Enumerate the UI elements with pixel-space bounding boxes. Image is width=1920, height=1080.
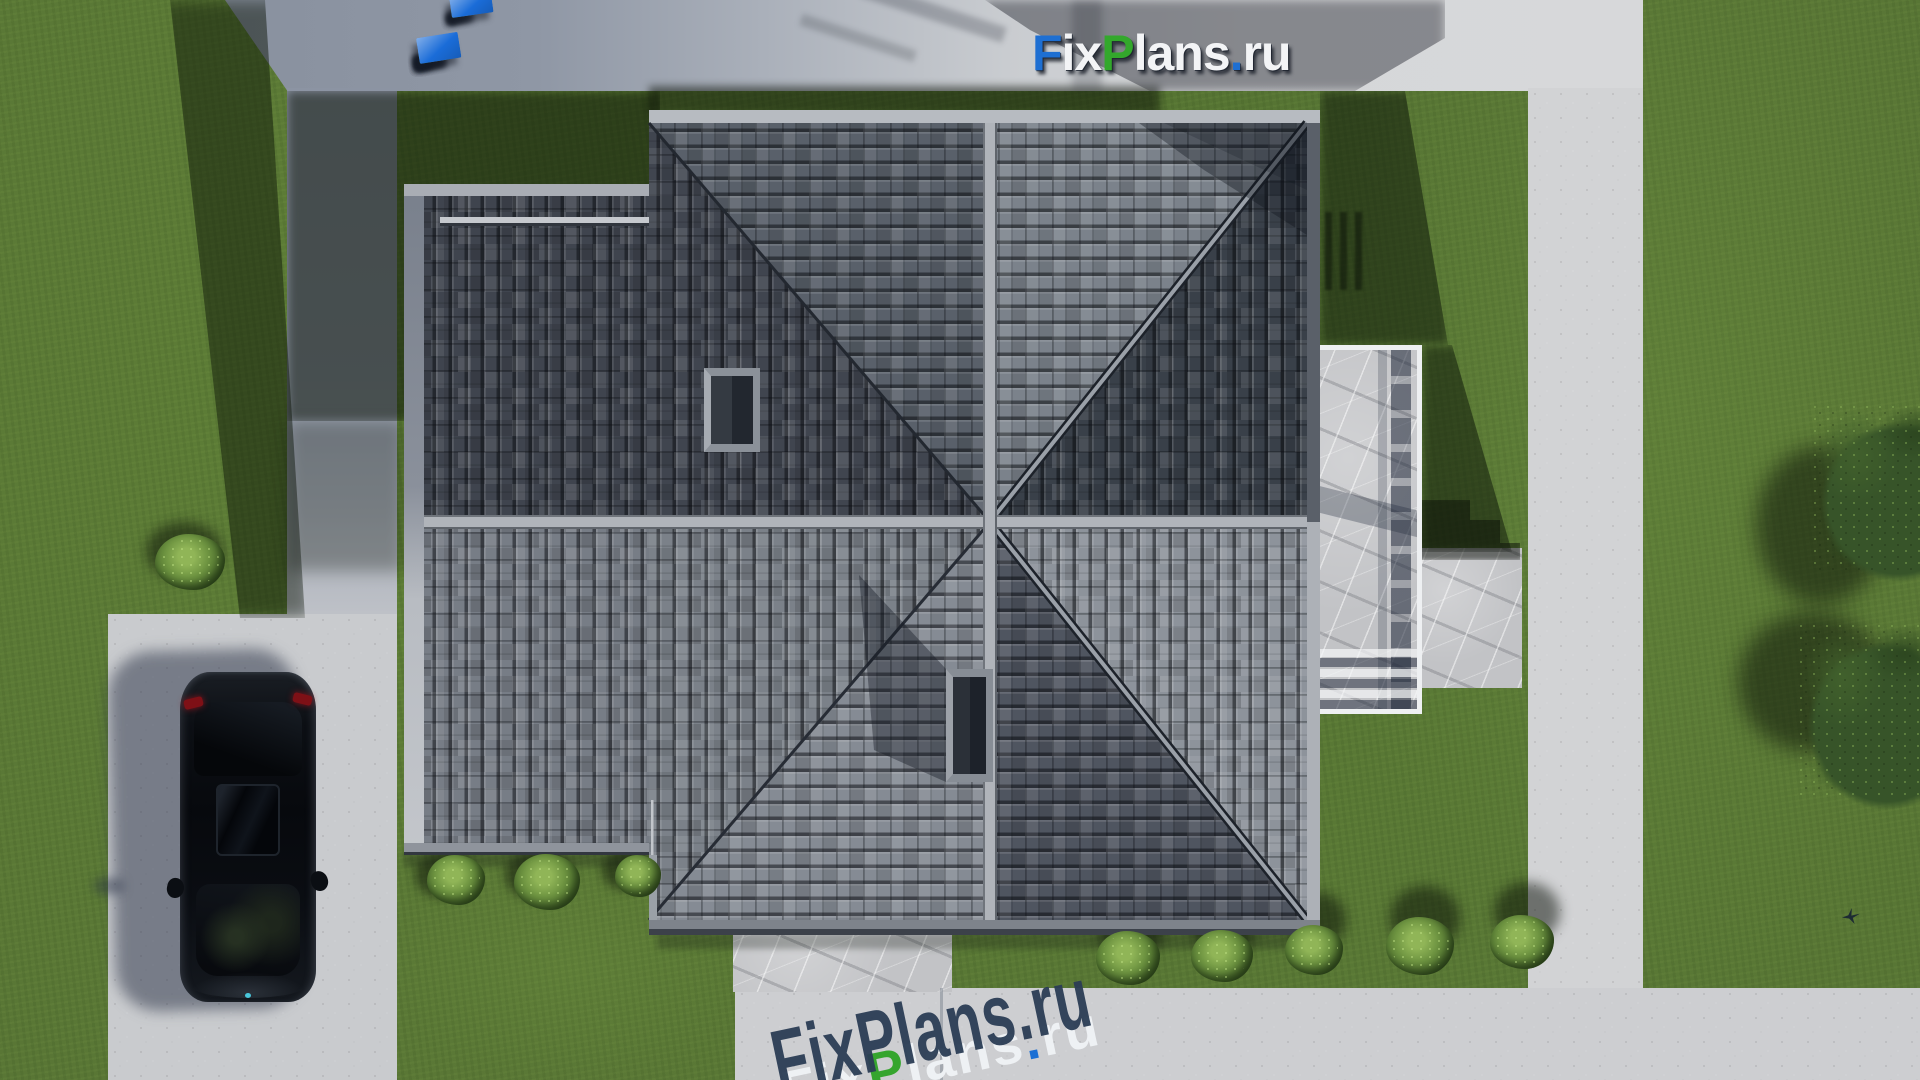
logo-block-blue [449, 0, 493, 18]
logo-3d-blocks [0, 0, 1920, 1080]
site-plan-scene: FixPlans.ru FixPlans.ru FixPlans.ru [0, 0, 1920, 1080]
logo-block-blue [416, 32, 462, 64]
